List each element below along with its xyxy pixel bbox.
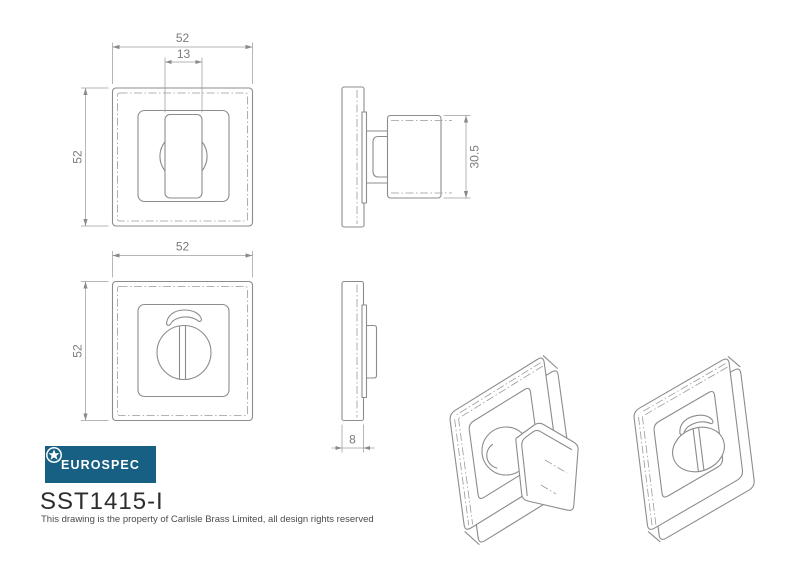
turn-neck-profile [373, 137, 388, 178]
square-knob [516, 423, 578, 510]
brand-name: EUROSPEC [61, 458, 140, 472]
view-front-thumbturn: 52 13 52 [71, 31, 253, 226]
thumbturn-bar [165, 115, 202, 199]
technical-drawing-page: 52 13 52 30. [0, 0, 800, 565]
iso-view-thumbturn [450, 356, 578, 545]
copyright-note: This drawing is the property of Carlisle… [41, 514, 374, 525]
dim-knob-height: 30.5 [468, 145, 482, 169]
view-side-release: 8 [332, 282, 377, 453]
part-number: SST1415-I [40, 488, 164, 516]
dim-height: 52 [71, 150, 85, 164]
turn-base-right-arc [202, 142, 207, 171]
rose-profile [342, 87, 364, 227]
release-boss-profile [367, 326, 377, 379]
dim-thickness: 8 [349, 433, 356, 447]
dim-turn-width: 13 [177, 47, 191, 61]
inner-square-profile [362, 112, 367, 203]
dim-width: 52 [176, 240, 190, 254]
turn-base-left-arc [160, 142, 165, 171]
dim-width: 52 [176, 31, 190, 45]
eurospec-logo: EUROSPEC [45, 446, 156, 483]
dim-height: 52 [71, 344, 85, 358]
release-indicator-crescent [167, 310, 202, 325]
iso-view-release [634, 357, 754, 542]
eurospec-globe-star-icon [45, 446, 63, 464]
release-turn-circle [157, 326, 211, 380]
rose-profile [342, 282, 364, 421]
view-side-thumbturn: 30.5 [342, 87, 482, 227]
neck-connector-lines [367, 131, 388, 183]
view-front-release: 52 52 [71, 240, 253, 421]
thumbturn-knob-profile [388, 116, 442, 199]
inner-square-profile [362, 305, 367, 398]
